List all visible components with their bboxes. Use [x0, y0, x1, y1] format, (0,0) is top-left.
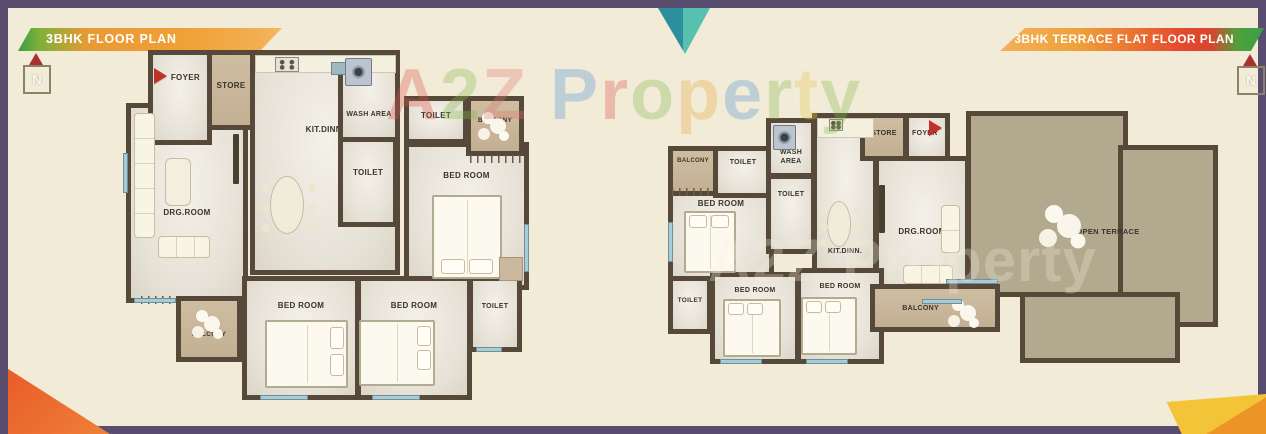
room-label: TOILET: [678, 297, 703, 304]
room-label: STORE: [871, 130, 897, 137]
orange-fold-decor: [1207, 394, 1266, 434]
canvas: 3BHK FLOOR PLAN N DRG.ROOM FOYER STORE K…: [0, 0, 1266, 434]
left-room-store: STORE: [207, 50, 255, 130]
entry-arrow-icon: [154, 68, 167, 84]
pillow: [417, 350, 431, 370]
room-label: TOILET: [778, 191, 805, 198]
right-room-toilet-mid: TOILET: [766, 174, 816, 254]
room-label: TOILET: [730, 159, 757, 166]
sofa: [941, 205, 960, 253]
right-plan-title: 3BHK TERRACE FLAT FLOOR PLAN: [1014, 32, 1234, 46]
room-label-line: AREA: [780, 158, 801, 165]
pillow: [330, 354, 344, 376]
compass-n-label: N: [1237, 66, 1265, 95]
kitchen-counter: [817, 118, 874, 138]
north-arrow-icon: [29, 53, 43, 65]
room-label: BED ROOM: [820, 283, 861, 290]
right-room-balcony-bottom: BALCONY: [870, 284, 1000, 332]
room-label-line: WASH: [780, 149, 802, 156]
left-plan-title: 3BHK FLOOR PLAN: [46, 32, 177, 46]
left-room-foyer: FOYER: [148, 50, 212, 145]
entry-arrow-icon: [929, 120, 942, 136]
window: [134, 298, 176, 303]
teal-triangle-decor: [658, 8, 710, 54]
left-room-toilet-top: TOILET: [404, 96, 468, 144]
right-room-foyer: FOYER: [904, 113, 950, 161]
pillow: [441, 259, 465, 274]
room-label: BED ROOM: [391, 301, 437, 310]
dining-table: [270, 176, 304, 234]
left-plan-title-banner: 3BHK FLOOR PLAN: [18, 28, 282, 51]
room-label: BALCONY: [192, 331, 226, 338]
right-room-toilet-top: TOILET: [713, 146, 773, 198]
dining-chairs: [262, 184, 270, 192]
pillow: [330, 327, 344, 349]
window: [476, 347, 502, 352]
window: [806, 359, 848, 364]
floor-plan-brochure: 3BHK FLOOR PLAN N DRG.ROOM FOYER STORE K…: [0, 0, 1266, 434]
right-plan-title-banner: 3BHK TERRACE FLAT FLOOR PLAN: [1000, 28, 1264, 51]
room-label: DRG.ROOM: [163, 208, 210, 217]
stove-icon: [275, 57, 299, 72]
room-label: BALCONY: [902, 305, 939, 312]
window: [946, 279, 998, 284]
pillow: [728, 303, 744, 315]
tv-unit: [233, 134, 239, 184]
room-label: OPEN TERRACE: [1048, 227, 1168, 236]
dining-chairs: [820, 207, 828, 215]
window: [260, 395, 308, 400]
washing-machine-icon: [773, 125, 796, 150]
tv-unit: [879, 185, 885, 233]
window: [720, 359, 762, 364]
north-arrow-icon: [1243, 54, 1257, 66]
pillow: [711, 215, 729, 228]
north-compass-right: N: [1237, 54, 1263, 95]
pillow: [806, 301, 822, 313]
center-table: [165, 158, 191, 206]
washing-machine-icon: [345, 58, 372, 86]
orange-corner-decor: [8, 360, 110, 434]
room-label: KIT.DINN.: [828, 248, 862, 255]
stove-icon: [829, 119, 843, 131]
pillow: [469, 259, 493, 274]
yellow-corner-decor: [1158, 394, 1266, 434]
stones-decor: [482, 112, 494, 124]
room-label: BED ROOM: [698, 199, 744, 208]
left-room-toilet-mid: TOILET: [338, 137, 398, 227]
right-room-open-terrace: [1020, 292, 1180, 363]
sofa: [158, 236, 210, 258]
room-label: STORE: [217, 81, 246, 90]
window: [372, 395, 420, 400]
room-label: DRG.ROOM: [898, 227, 945, 236]
right-room-toilet-bottom: TOILET: [668, 276, 712, 334]
window: [524, 224, 529, 272]
window: [922, 299, 962, 304]
room-label: TOILET: [482, 303, 509, 310]
left-room-toilet-bottom: TOILET: [468, 276, 522, 352]
left-room-balcony-top: BALCONY: [466, 96, 524, 156]
dining-table: [827, 201, 851, 247]
wardrobe: [499, 257, 523, 281]
pillow: [825, 301, 841, 313]
railing: [470, 155, 522, 163]
room-label: BALCONY: [677, 158, 709, 164]
room-label: WASHAREA: [780, 149, 802, 167]
stones-decor: [196, 310, 208, 322]
room-label: FOYER: [171, 73, 200, 82]
stones-decor: [1045, 205, 1063, 223]
window: [123, 153, 128, 193]
window: [668, 222, 673, 262]
pillow: [747, 303, 763, 315]
room-label: TOILET: [353, 168, 383, 177]
room-label: BED ROOM: [278, 301, 324, 310]
sofa: [134, 113, 155, 238]
north-compass-left: N: [23, 53, 49, 94]
room-label: WASH AREA: [346, 111, 391, 118]
room-label: TOILET: [421, 111, 451, 120]
compass-n-label: N: [23, 65, 51, 94]
room-label: BED ROOM: [735, 287, 776, 294]
pillow: [417, 326, 431, 346]
left-room-balcony-bottom: BALCONY: [176, 296, 242, 362]
right-room-open-terrace: [966, 111, 1128, 297]
room-label: BED ROOM: [443, 171, 489, 180]
pillow: [689, 215, 707, 228]
railing: [672, 188, 712, 196]
